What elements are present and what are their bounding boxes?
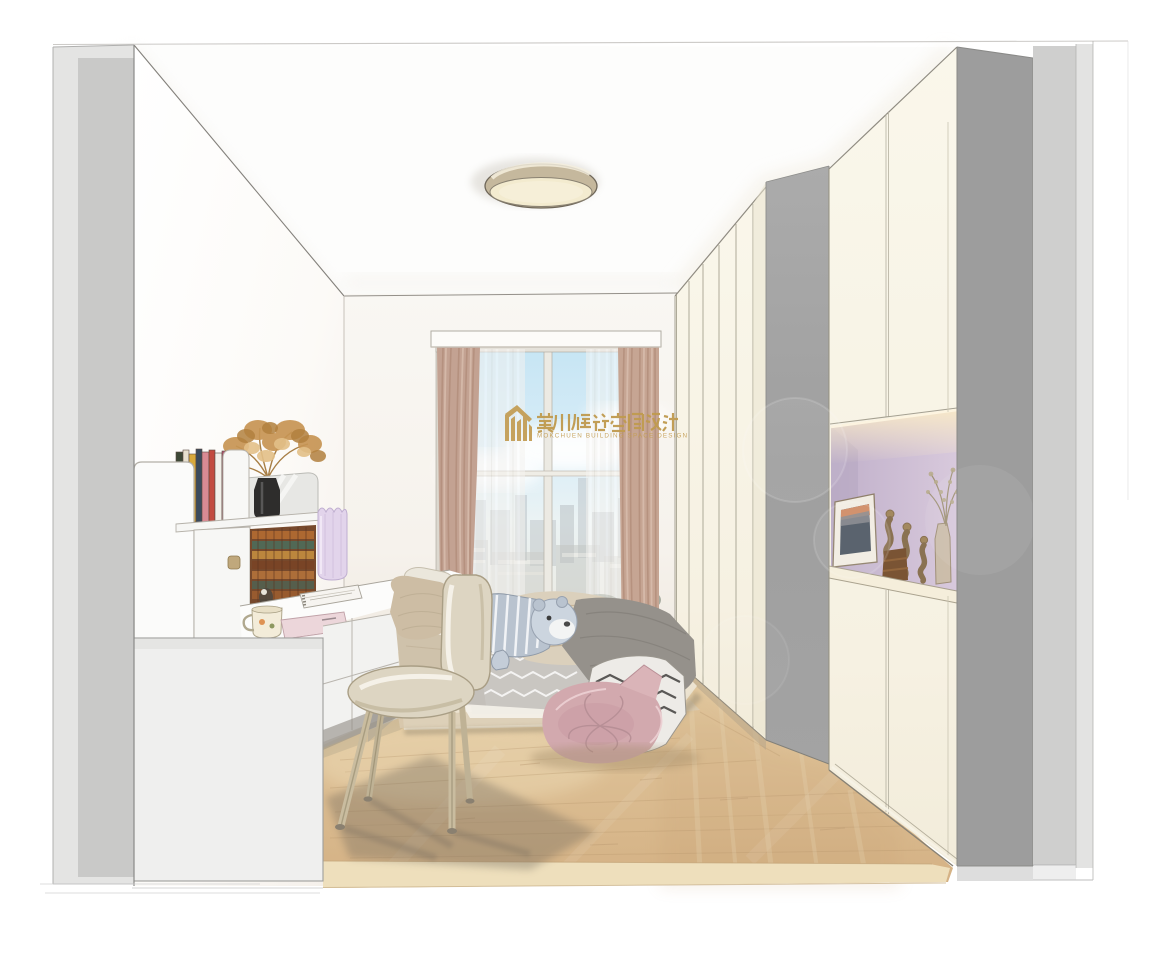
svg-text:MOKCHUEN BUILDING SPACE DESIGN: MOKCHUEN BUILDING SPACE DESIGN (537, 433, 688, 440)
